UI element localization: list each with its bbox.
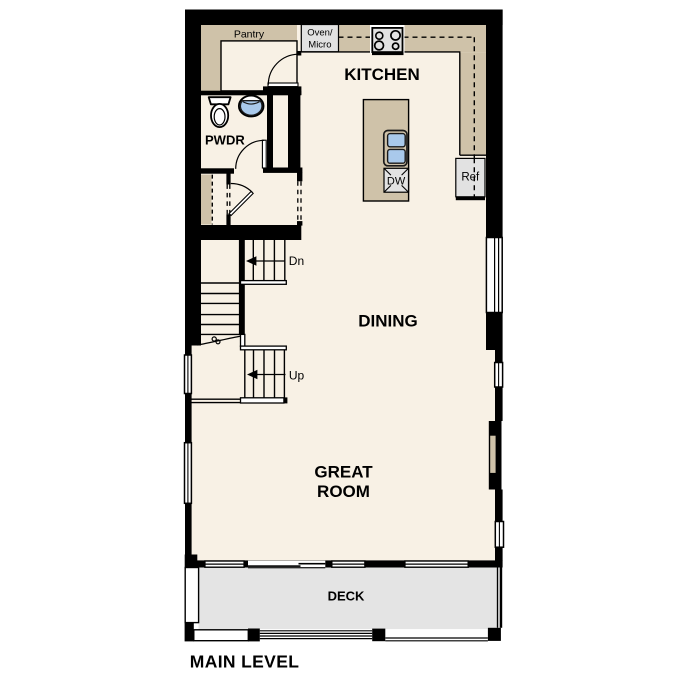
svg-text:KITCHEN: KITCHEN xyxy=(344,65,420,84)
svg-text:DW: DW xyxy=(387,176,406,188)
svg-text:Ref: Ref xyxy=(461,171,480,183)
svg-text:MAIN LEVEL: MAIN LEVEL xyxy=(190,652,299,672)
svg-text:Dn: Dn xyxy=(289,254,304,268)
svg-text:Oven/: Oven/ xyxy=(307,28,333,39)
svg-text:DINING: DINING xyxy=(358,311,418,330)
svg-text:DECK: DECK xyxy=(328,589,365,604)
svg-text:GREAT: GREAT xyxy=(314,463,373,482)
svg-text:PWDR: PWDR xyxy=(205,132,245,147)
svg-text:Micro: Micro xyxy=(308,40,331,51)
svg-text:Up: Up xyxy=(289,368,305,382)
svg-text:Pantry: Pantry xyxy=(234,28,265,40)
svg-text:ROOM: ROOM xyxy=(317,482,370,501)
